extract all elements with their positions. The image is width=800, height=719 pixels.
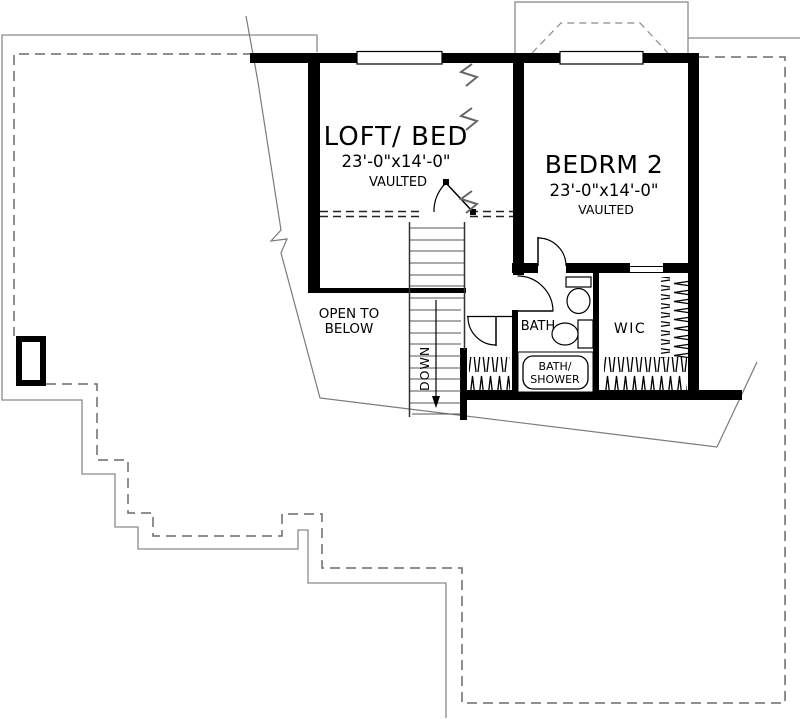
wall-bottom <box>465 390 742 400</box>
wall-bed2-bottom-seg2 <box>566 263 630 273</box>
wall-bath-left-lower <box>512 310 518 397</box>
room-note-loft-bed: VAULTED <box>369 175 427 190</box>
window-bedroom2 <box>560 52 643 65</box>
wall-loft-left <box>308 53 320 293</box>
closet-rod-hall <box>469 357 510 391</box>
tub-label-line1: BATH/ <box>539 360 572 373</box>
dormer-outline <box>515 2 688 57</box>
loft-door-swing-arc <box>434 183 446 212</box>
wall-loft-bed2-partition <box>513 53 524 275</box>
room-dims-loft-bed: 23'-0"x14'-0" <box>342 152 451 171</box>
floor-plan-page: DOWN LOFT/ BED 23'-0"x14'-0" VAUL <box>0 0 800 719</box>
open-to-below-label-line2: BELOW <box>325 321 374 337</box>
wall-bed2-bottom-seg3 <box>663 263 699 273</box>
room-label-wic: WIC <box>614 321 646 337</box>
wall-stair-right <box>460 348 467 420</box>
floor-plan-canvas: DOWN LOFT/ BED 23'-0"x14'-0" VAUL <box>0 0 800 719</box>
room-label-loft-bed: LOFT/ BED <box>324 122 469 152</box>
labels: LOFT/ BED 23'-0"x14'-0" VAULTED BEDRM 2 … <box>319 122 664 386</box>
loft-door-leaf <box>446 183 473 212</box>
loft-floor-edge <box>311 288 466 293</box>
room-label-bath: BATH <box>521 319 556 334</box>
closet-rod-wic-right <box>661 277 688 358</box>
closet-door-swing-arc <box>468 317 496 345</box>
sink-bowl <box>552 323 578 345</box>
wic-opening-header <box>630 267 663 273</box>
staircase: DOWN <box>410 222 465 417</box>
wall-bed2-bottom-seg1 <box>512 263 538 273</box>
room-dims-bedroom2: 23'-0"x14'-0" <box>550 181 659 200</box>
closet-rod-wic-bottom <box>604 357 687 391</box>
bedroom2-door-swing-arc <box>538 238 566 266</box>
bath-door-swing-arc <box>518 276 554 312</box>
dormer-roof-dashed <box>532 23 668 53</box>
room-label-bedroom2: BEDRM 2 <box>545 150 664 179</box>
chimney <box>19 339 43 383</box>
railing-dashed-lines <box>320 212 513 217</box>
room-note-bedroom2: VAULTED <box>578 202 634 217</box>
wall-bath-wic-partition <box>593 273 599 397</box>
wall-right <box>688 53 699 400</box>
stair-down-label: DOWN <box>417 346 432 391</box>
stair-down-arrow-head <box>432 396 440 408</box>
toilet-tank <box>566 277 591 287</box>
sink-vanity <box>578 320 593 348</box>
loft-door-hinge-top <box>443 179 449 185</box>
tub-label-line2: SHOWER <box>530 373 580 386</box>
window-loft <box>357 52 442 65</box>
toilet-bowl <box>567 289 590 314</box>
open-to-below-label-line1: OPEN TO <box>319 306 380 322</box>
